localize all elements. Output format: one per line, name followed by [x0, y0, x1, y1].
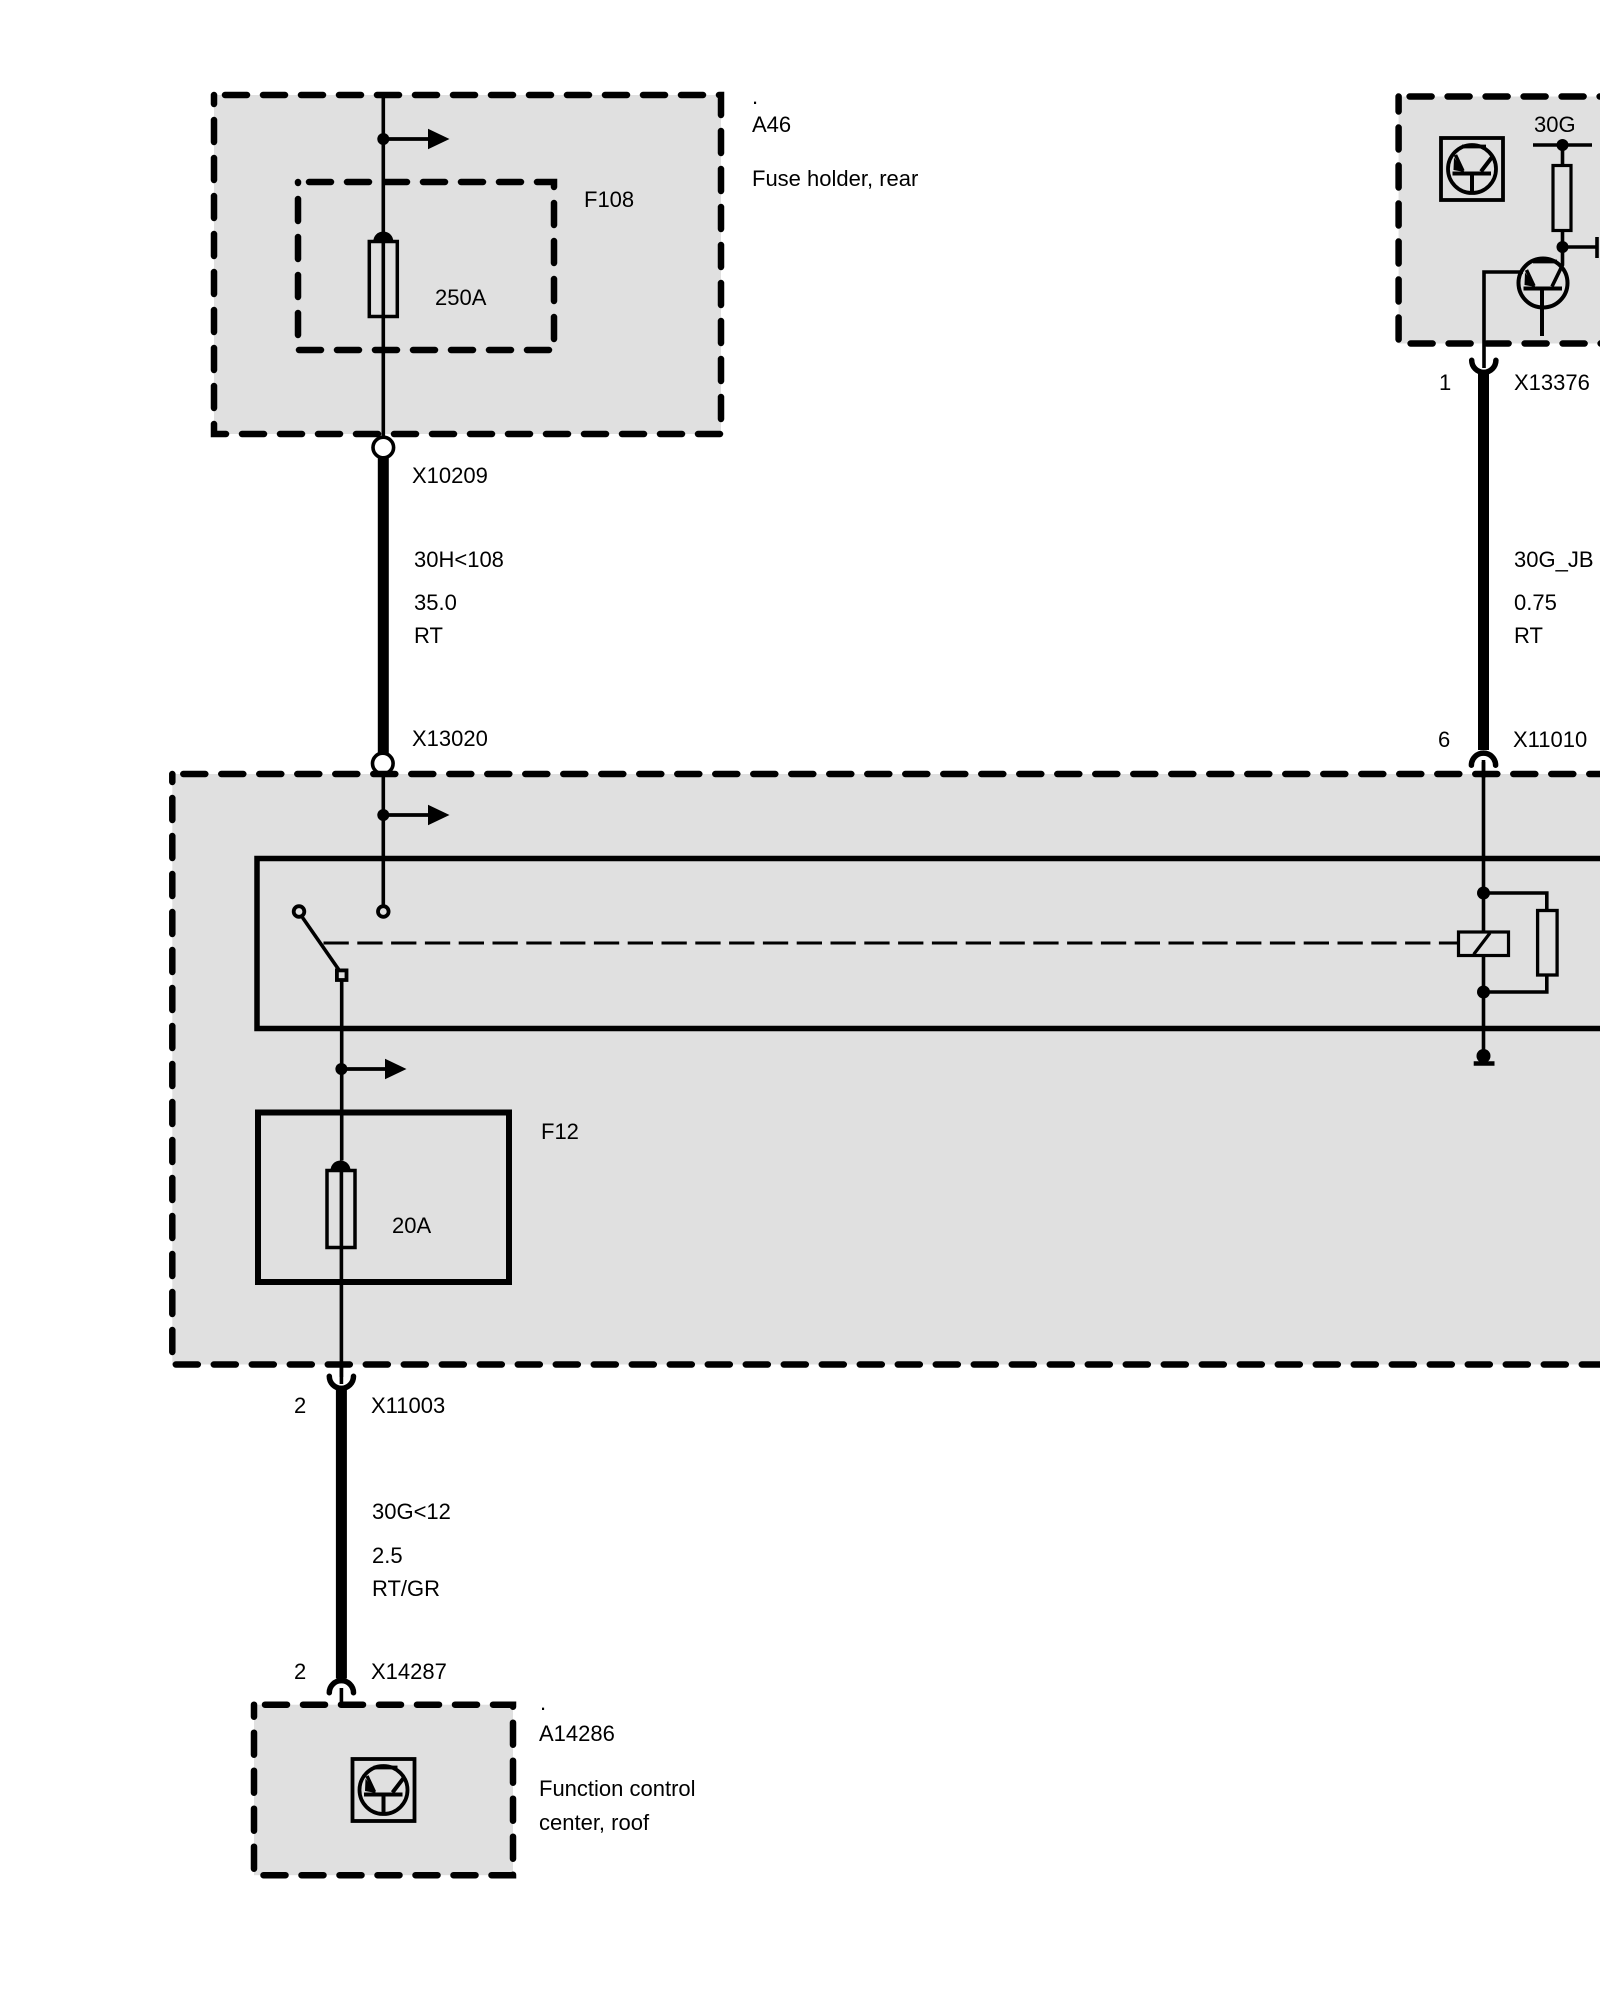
- svg-text:X11003: X11003: [371, 1393, 445, 1418]
- svg-text:.: .: [752, 84, 758, 109]
- svg-text:6: 6: [1438, 727, 1450, 752]
- svg-text:30G: 30G: [1534, 112, 1576, 137]
- svg-text:35.0: 35.0: [414, 590, 457, 615]
- svg-text:X14287: X14287: [371, 1659, 447, 1684]
- svg-text:Function control: Function control: [539, 1776, 696, 1801]
- svg-text:30H<108: 30H<108: [414, 547, 504, 572]
- svg-text:Fuse holder, rear: Fuse holder, rear: [752, 166, 918, 191]
- svg-text:RT: RT: [1514, 623, 1543, 648]
- svg-text:A14286: A14286: [539, 1721, 615, 1746]
- svg-text:0.75: 0.75: [1514, 590, 1557, 615]
- svg-text:1: 1: [1439, 370, 1451, 395]
- svg-text:center, roof: center, roof: [539, 1810, 650, 1835]
- svg-text:RT/GR: RT/GR: [372, 1576, 440, 1601]
- svg-text:F108: F108: [584, 187, 634, 212]
- svg-text:X13376: X13376: [1514, 370, 1590, 395]
- svg-text:2: 2: [294, 1393, 306, 1418]
- svg-text:A46: A46: [752, 112, 791, 137]
- svg-text:X11010: X11010: [1513, 727, 1587, 752]
- svg-text:F12: F12: [541, 1119, 579, 1144]
- svg-text:30G_JB: 30G_JB: [1514, 547, 1594, 572]
- svg-text:2: 2: [294, 1659, 306, 1684]
- svg-text:X10209: X10209: [412, 463, 488, 488]
- svg-text:2.5: 2.5: [372, 1543, 403, 1568]
- svg-text:RT: RT: [414, 623, 443, 648]
- svg-text:20A: 20A: [392, 1213, 431, 1238]
- svg-text:30G<12: 30G<12: [372, 1499, 451, 1524]
- svg-text:.: .: [540, 1690, 546, 1715]
- svg-text:X13020: X13020: [412, 726, 488, 751]
- svg-text:250A: 250A: [435, 285, 487, 310]
